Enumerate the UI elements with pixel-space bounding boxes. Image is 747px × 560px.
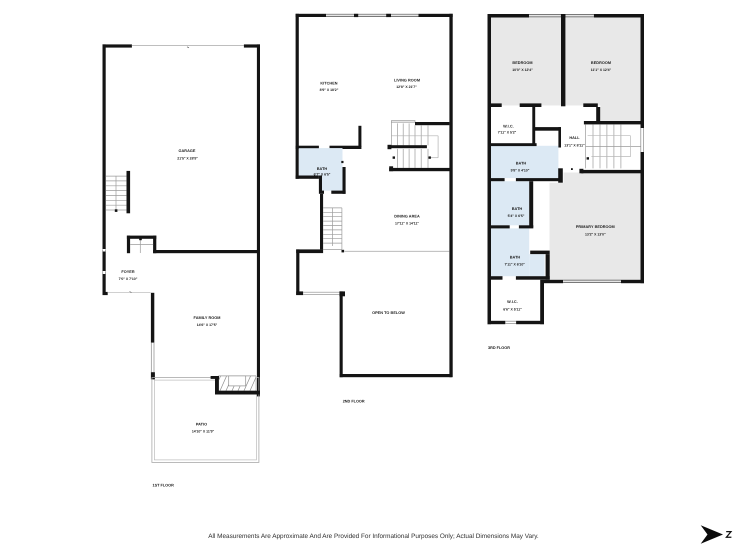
svg-text:BEDROOM: BEDROOM	[591, 61, 611, 65]
svg-text:13'1" X 8'11": 13'1" X 8'11"	[564, 143, 585, 147]
svg-text:2ND FLOOR: 2ND FLOOR	[343, 400, 365, 404]
svg-text:KITCHEN: KITCHEN	[320, 81, 337, 85]
svg-text:FOYER: FOYER	[121, 270, 135, 274]
svg-text:11'1" X 12'4": 11'1" X 12'4"	[591, 68, 612, 72]
svg-text:14'6" X 17'5": 14'6" X 17'5"	[197, 323, 218, 327]
svg-text:BATH: BATH	[512, 207, 523, 211]
svg-text:5'4" X 6'5": 5'4" X 6'5"	[508, 214, 525, 218]
svg-text:14'10" X 11'9": 14'10" X 11'9"	[192, 430, 215, 434]
svg-text:OPEN TO BELOW: OPEN TO BELOW	[372, 311, 405, 315]
svg-text:10'0" X 12'4": 10'0" X 12'4"	[512, 68, 533, 72]
svg-text:9'8" X 4'10": 9'8" X 4'10"	[511, 168, 530, 172]
svg-text:BEDROOM: BEDROOM	[512, 61, 532, 65]
svg-text:21'5" X 28'9": 21'5" X 28'9"	[177, 156, 198, 160]
svg-text:6'6" X 5'11": 6'6" X 5'11"	[503, 308, 522, 312]
svg-text:PRIMARY BEDROOM: PRIMARY BEDROOM	[576, 225, 615, 229]
svg-text:13'2" X 13'0": 13'2" X 13'0"	[585, 233, 606, 237]
svg-text:W.I.C.: W.I.C.	[503, 124, 514, 128]
svg-text:W.I.C.: W.I.C.	[507, 300, 518, 304]
svg-text:PATIO: PATIO	[196, 423, 207, 427]
svg-text:HALL: HALL	[569, 136, 580, 140]
svg-text:GARAGE: GARAGE	[179, 149, 196, 153]
svg-text:DINING AREA: DINING AREA	[394, 214, 420, 218]
svg-text:17'11" X 14'11": 17'11" X 14'11"	[395, 221, 419, 225]
svg-text:BATH: BATH	[516, 162, 527, 166]
svg-text:7'0" X 7'10": 7'0" X 7'10"	[119, 277, 138, 281]
svg-text:FAMILY ROOM: FAMILY ROOM	[194, 316, 221, 320]
svg-text:1ST FLOOR: 1ST FLOOR	[153, 484, 175, 488]
svg-text:12'8" X 21'7": 12'8" X 21'7"	[396, 85, 417, 89]
svg-text:LIVING ROOM: LIVING ROOM	[394, 78, 420, 82]
svg-text:All Measurements Are Approxima: All Measurements Are Approximate And Are…	[208, 533, 539, 540]
svg-text:BATH: BATH	[510, 256, 521, 260]
svg-text:8'9" X 18'2": 8'9" X 18'2"	[320, 88, 339, 92]
svg-text:BATH: BATH	[317, 167, 328, 171]
svg-text:3RD FLOOR: 3RD FLOOR	[488, 346, 510, 350]
svg-text:7'11" X 5'2": 7'11" X 5'2"	[498, 130, 517, 134]
svg-text:7'11" X 6'10": 7'11" X 6'10"	[505, 262, 526, 266]
